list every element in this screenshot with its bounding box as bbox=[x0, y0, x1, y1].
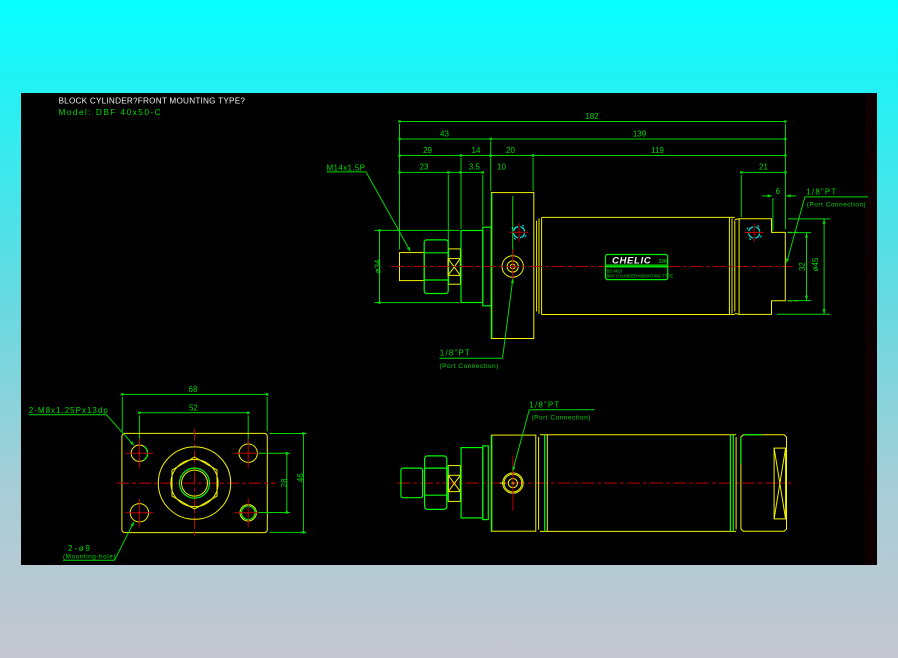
svg-text:ø34: ø34 bbox=[374, 259, 383, 273]
svg-text:139: 139 bbox=[633, 129, 647, 138]
svg-text:(Port Connection): (Port Connection) bbox=[440, 363, 499, 370]
svg-text:(Mounting-hole): (Mounting-hole) bbox=[63, 553, 116, 560]
svg-text:28: 28 bbox=[280, 478, 289, 487]
svg-text:BKP CYLINDER MOUNTING TYPE: BKP CYLINDER MOUNTING TYPE bbox=[607, 273, 674, 278]
svg-text:1/8”PT: 1/8”PT bbox=[806, 187, 837, 196]
svg-text:182: 182 bbox=[585, 112, 599, 121]
svg-text:29: 29 bbox=[423, 146, 432, 155]
svg-text:M14x1.5P: M14x1.5P bbox=[327, 163, 366, 172]
svg-text:43: 43 bbox=[440, 129, 449, 138]
svg-text:68: 68 bbox=[189, 385, 198, 394]
svg-text:(Port Connection): (Port Connection) bbox=[532, 415, 591, 422]
svg-text:1/8”PT: 1/8”PT bbox=[529, 400, 560, 409]
svg-text:21: 21 bbox=[759, 163, 768, 172]
svg-text:32: 32 bbox=[798, 262, 807, 271]
svg-text:32M: 32M bbox=[659, 259, 669, 265]
svg-text:Model: DBF 40x50-C: Model: DBF 40x50-C bbox=[59, 107, 163, 117]
svg-text:3.5: 3.5 bbox=[469, 163, 481, 172]
svg-text:119: 119 bbox=[651, 146, 664, 155]
svg-text:6: 6 bbox=[776, 187, 781, 196]
svg-text:(Port Connection): (Port Connection) bbox=[807, 202, 866, 209]
svg-text:10: 10 bbox=[497, 163, 506, 172]
svg-text:52: 52 bbox=[189, 403, 198, 412]
svg-text:14: 14 bbox=[472, 146, 481, 155]
svg-text:2-ø9: 2-ø9 bbox=[68, 544, 92, 553]
svg-text:23: 23 bbox=[420, 163, 429, 172]
svg-text:20: 20 bbox=[506, 146, 515, 155]
svg-text:1/8”PT: 1/8”PT bbox=[440, 349, 471, 358]
svg-text:2-M8x1.25Px13dp: 2-M8x1.25Px13dp bbox=[29, 406, 109, 415]
svg-text:BLOCK CYLINDER?FRONT MOUNTING: BLOCK CYLINDER?FRONT MOUNTING TYPE? bbox=[59, 97, 246, 106]
svg-text:46: 46 bbox=[296, 473, 305, 482]
svg-text:ø45: ø45 bbox=[811, 257, 820, 271]
